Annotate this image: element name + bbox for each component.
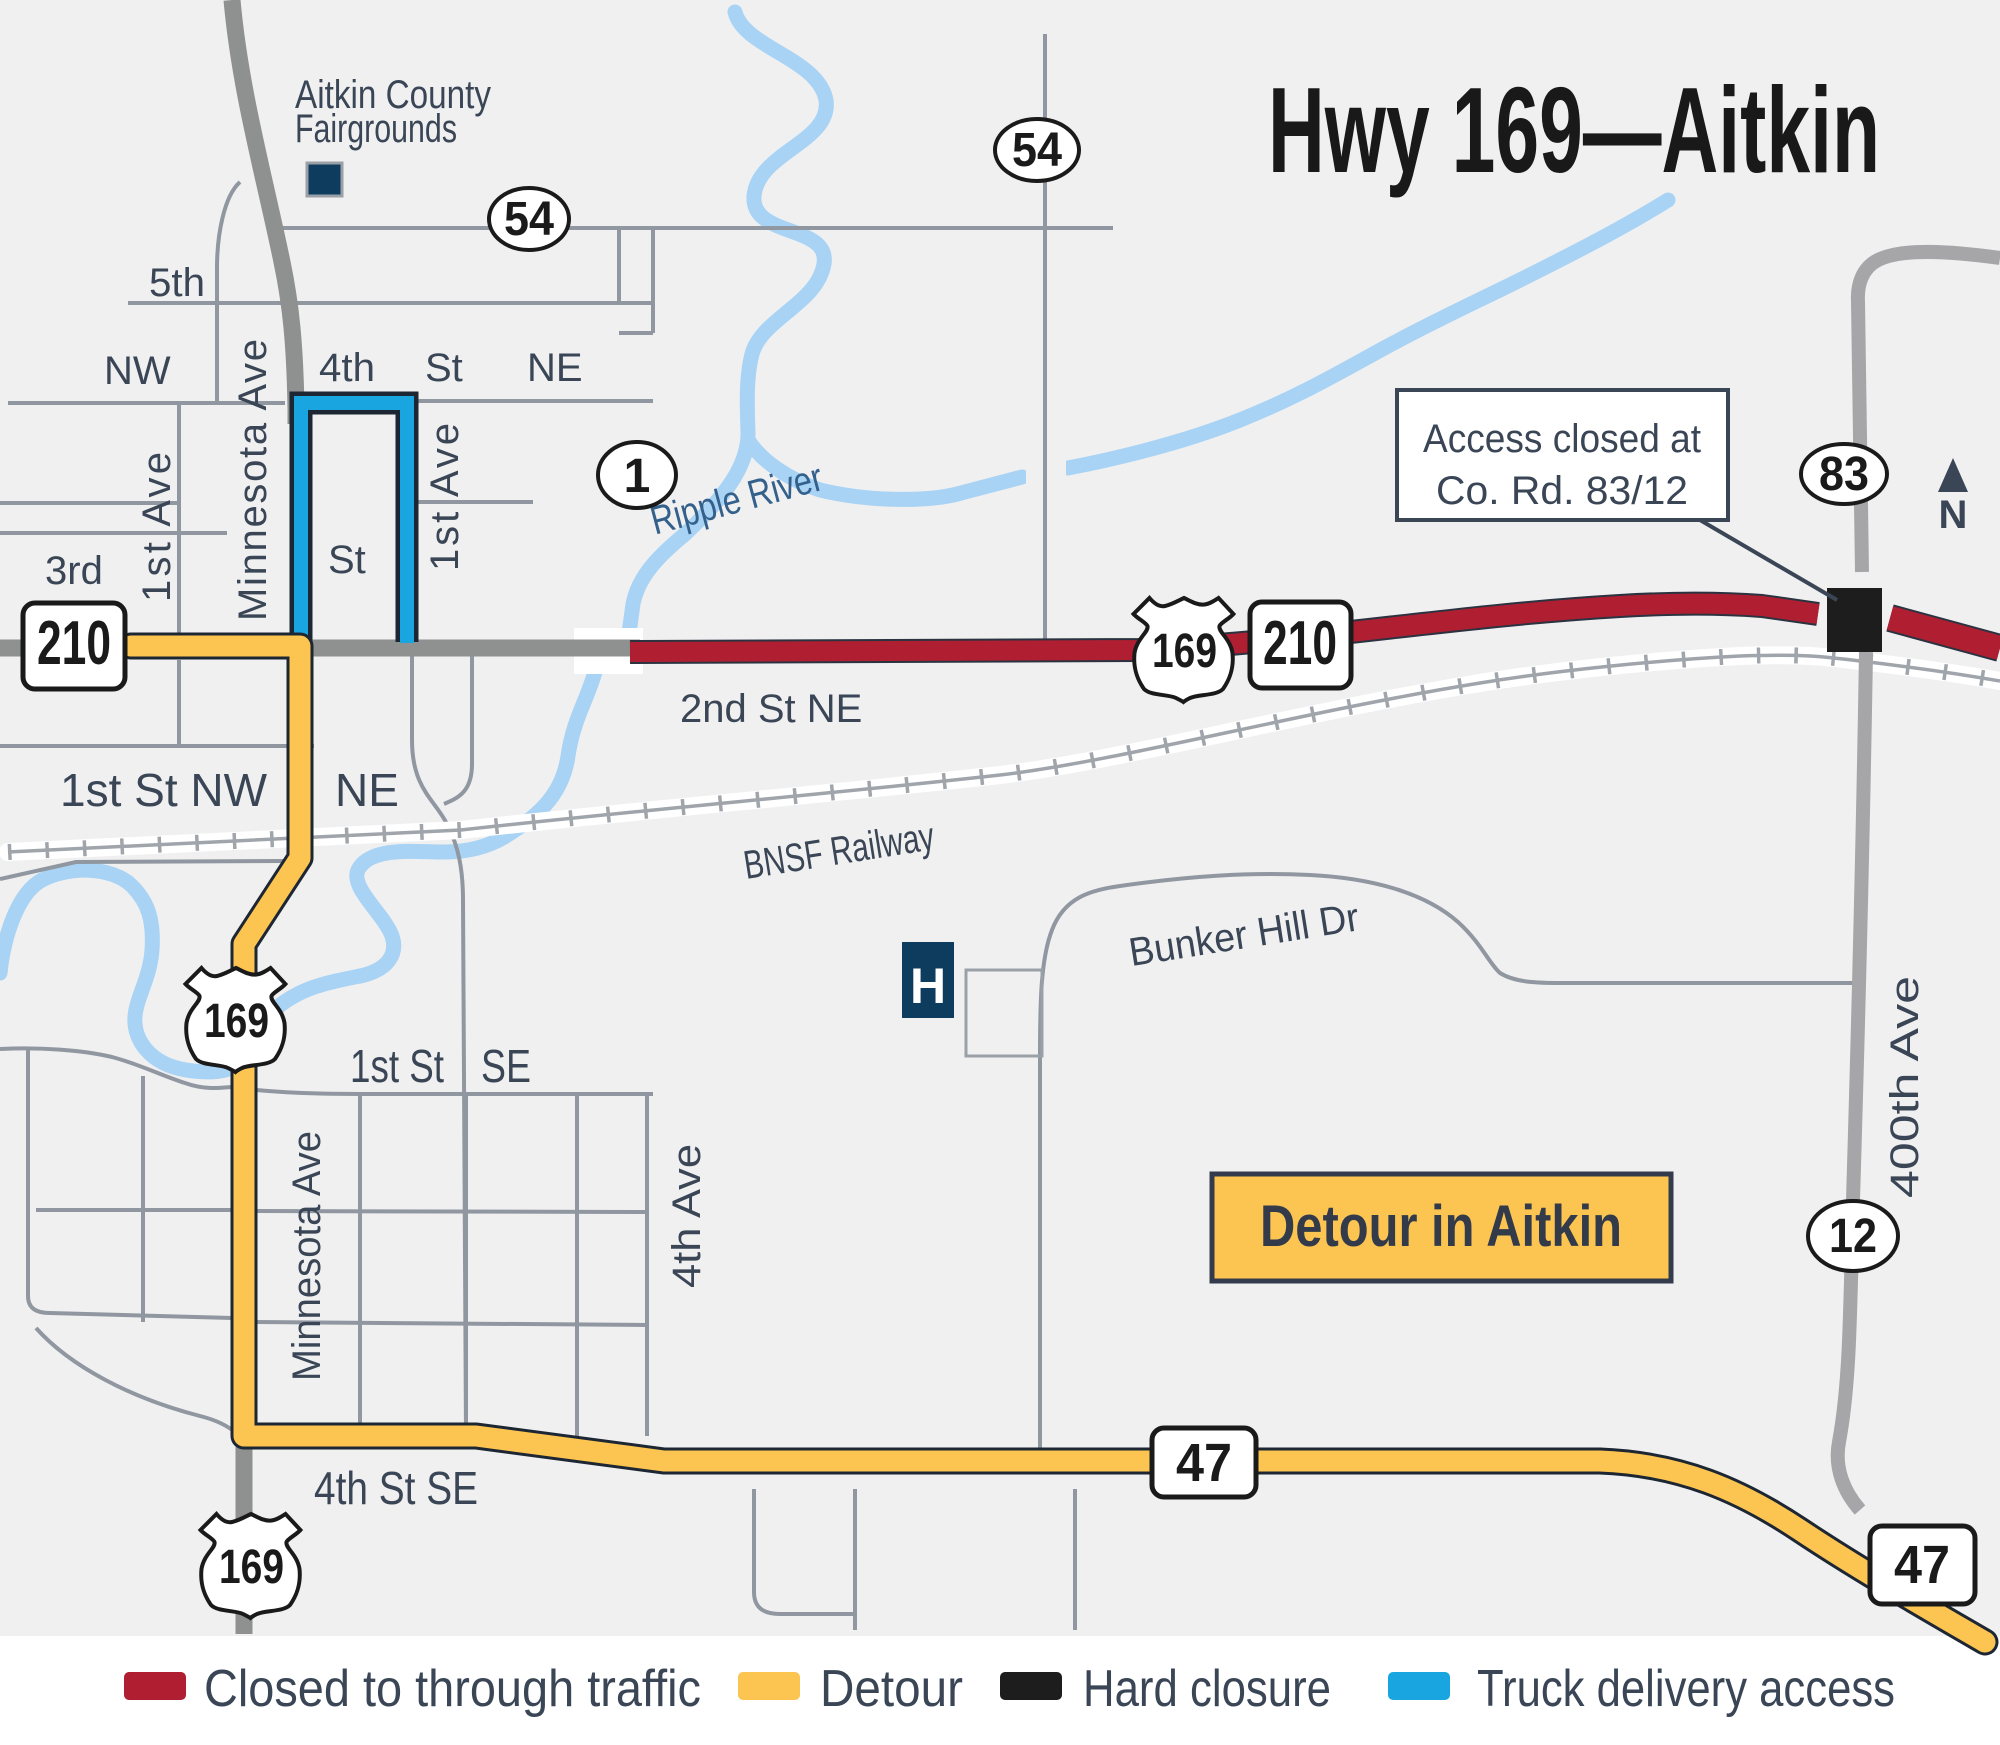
- svg-text:N: N: [1939, 493, 1968, 537]
- svg-text:Fairgrounds: Fairgrounds: [295, 107, 457, 151]
- svg-text:NE: NE: [527, 346, 583, 390]
- svg-text:NE: NE: [335, 764, 399, 816]
- svg-text:210: 210: [37, 609, 111, 678]
- svg-text:4th St SE: 4th St SE: [314, 1462, 478, 1514]
- svg-text:169: 169: [1152, 625, 1217, 678]
- svg-text:St: St: [328, 538, 366, 582]
- svg-text:4th Ave: 4th Ave: [665, 1144, 709, 1288]
- svg-text:400th Ave: 400th Ave: [1883, 976, 1927, 1198]
- svg-text:4th: 4th: [319, 346, 375, 390]
- svg-text:Truck delivery access: Truck delivery access: [1477, 1660, 1895, 1718]
- svg-text:1st St NW: 1st St NW: [60, 764, 268, 816]
- svg-text:Detour in Aitkin: Detour in Aitkin: [1260, 1194, 1622, 1259]
- svg-text:2nd St NE: 2nd St NE: [680, 687, 862, 731]
- svg-text:1st Ave: 1st Ave: [423, 423, 467, 571]
- svg-text:12: 12: [1829, 1210, 1877, 1263]
- svg-text:47: 47: [1176, 1433, 1232, 1493]
- svg-text:54: 54: [1012, 124, 1062, 177]
- svg-text:Hwy 169—Aitkin: Hwy 169—Aitkin: [1268, 62, 1880, 198]
- svg-text:SE: SE: [481, 1040, 531, 1092]
- svg-text:Access closed at: Access closed at: [1423, 417, 1701, 461]
- svg-text:Closed to through traffic: Closed to through traffic: [204, 1660, 701, 1718]
- svg-text:1st St: 1st St: [350, 1040, 444, 1092]
- svg-text:54: 54: [504, 193, 554, 246]
- svg-text:1: 1: [624, 450, 651, 503]
- svg-text:169: 169: [219, 1541, 284, 1594]
- svg-text:210: 210: [1263, 609, 1337, 678]
- svg-text:Detour: Detour: [820, 1660, 963, 1718]
- svg-text:St: St: [425, 346, 463, 390]
- svg-text:H: H: [910, 958, 946, 1014]
- svg-text:Minnesota Ave: Minnesota Ave: [231, 339, 275, 621]
- svg-text:NW: NW: [104, 349, 171, 393]
- svg-text:169: 169: [204, 995, 269, 1048]
- svg-text:Minnesota Ave: Minnesota Ave: [285, 1131, 329, 1381]
- svg-text:3rd: 3rd: [45, 549, 103, 593]
- svg-text:5th: 5th: [149, 261, 205, 305]
- svg-text:Hard closure: Hard closure: [1083, 1660, 1331, 1718]
- svg-text:47: 47: [1894, 1535, 1950, 1595]
- svg-text:83: 83: [1819, 448, 1869, 501]
- svg-text:Co. Rd. 83/12: Co. Rd. 83/12: [1436, 469, 1688, 513]
